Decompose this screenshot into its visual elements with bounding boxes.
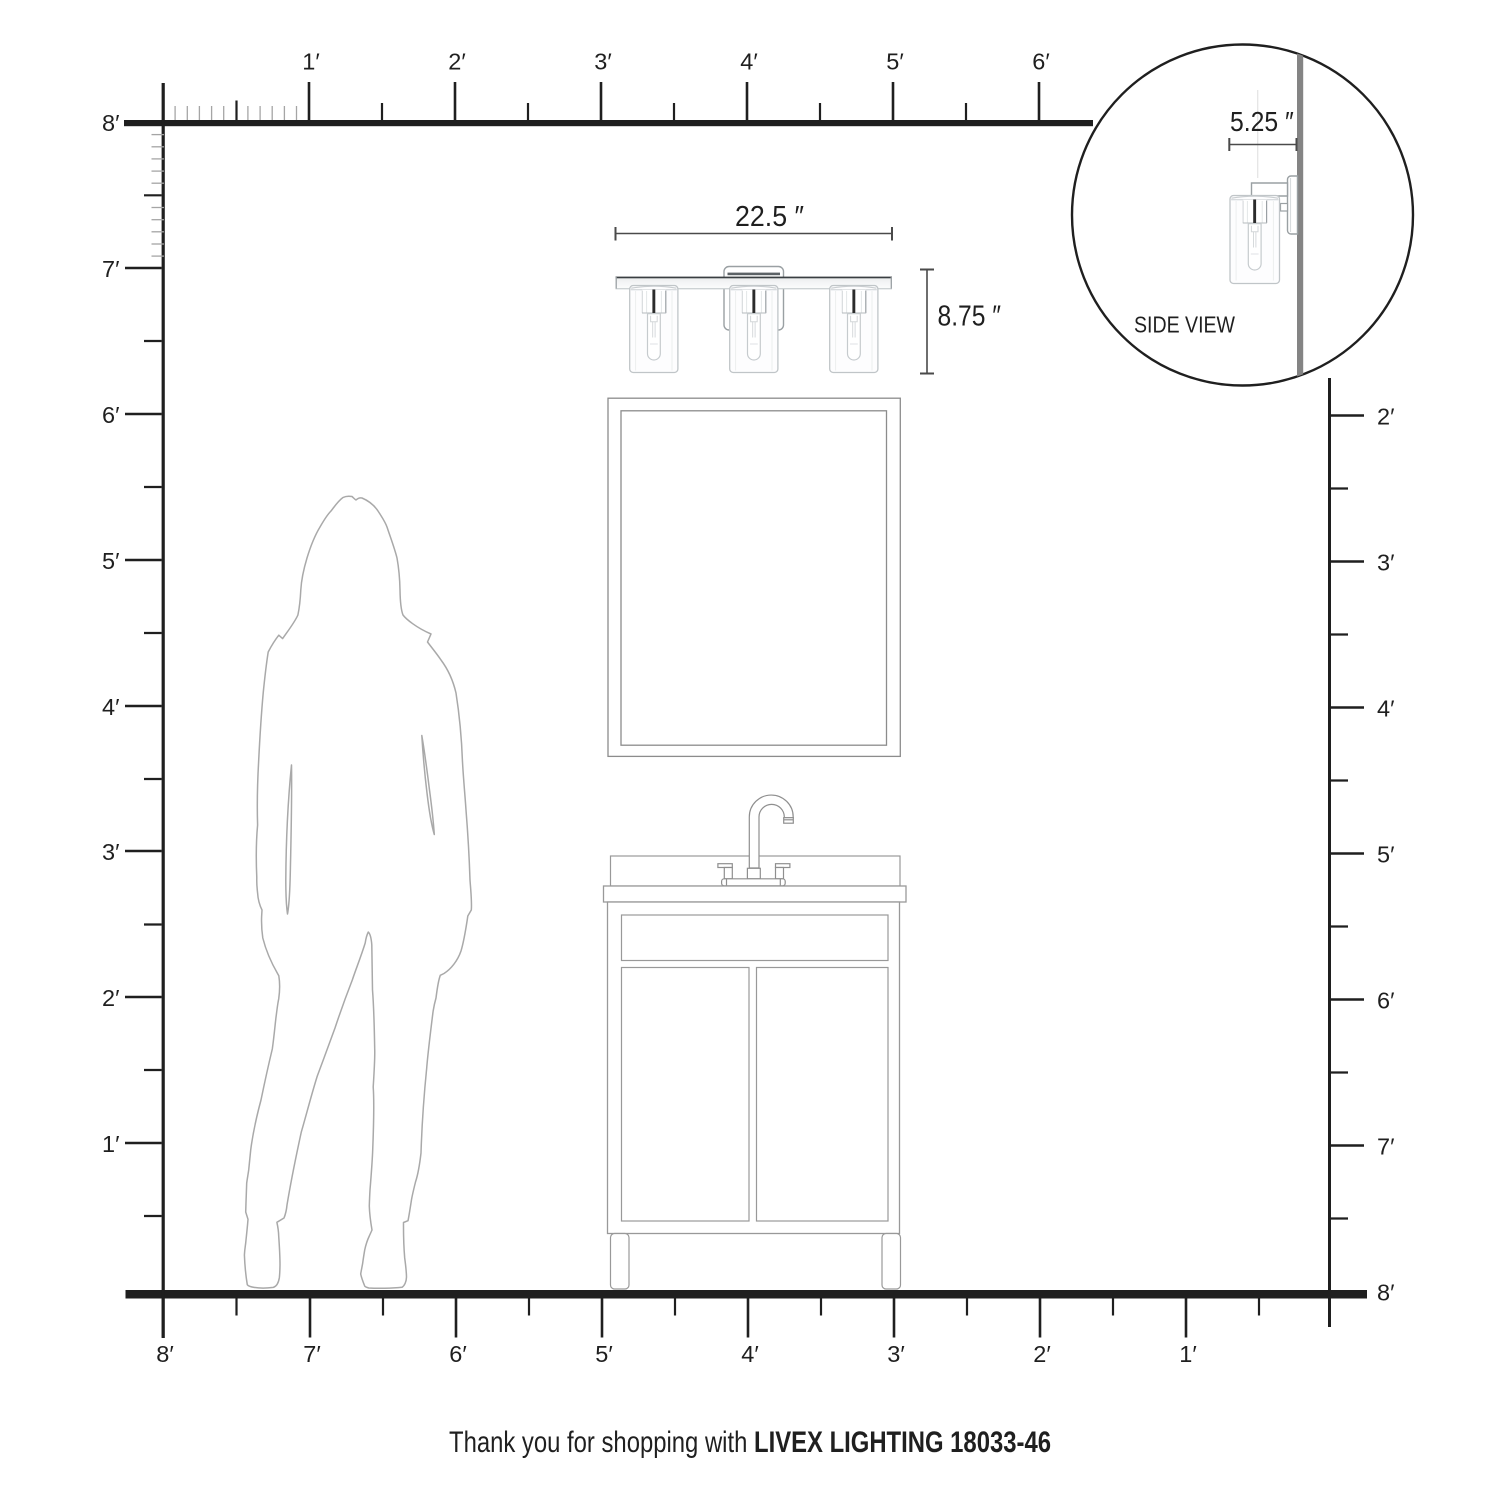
svg-text:1′: 1′ [302, 49, 319, 75]
svg-text:4′: 4′ [741, 1341, 758, 1367]
svg-text:6′: 6′ [102, 402, 119, 428]
svg-text:2′: 2′ [102, 985, 119, 1011]
svg-text:4′: 4′ [1377, 696, 1394, 722]
svg-text:1′: 1′ [102, 1131, 119, 1157]
svg-text:6′: 6′ [1032, 49, 1049, 75]
svg-text:7′: 7′ [1377, 1134, 1394, 1160]
svg-text:2′: 2′ [1377, 404, 1394, 430]
svg-text:5′: 5′ [1377, 842, 1394, 868]
svg-text:8′: 8′ [1377, 1280, 1394, 1306]
svg-text:5′: 5′ [886, 49, 903, 75]
svg-text:3′: 3′ [102, 839, 119, 865]
svg-text:22.5 ″: 22.5 ″ [735, 201, 804, 233]
svg-text:5.25 ″: 5.25 ″ [1230, 106, 1294, 137]
svg-text:2′: 2′ [448, 49, 465, 75]
svg-text:8.75 ″: 8.75 ″ [938, 301, 1002, 333]
svg-text:3′: 3′ [887, 1341, 904, 1367]
svg-text:5′: 5′ [595, 1341, 612, 1367]
svg-text:1′: 1′ [1179, 1341, 1196, 1367]
svg-text:7′: 7′ [102, 256, 119, 282]
svg-text:7′: 7′ [303, 1341, 320, 1367]
svg-text:6′: 6′ [449, 1341, 466, 1367]
svg-text:3′: 3′ [1377, 550, 1394, 576]
svg-text:3′: 3′ [594, 49, 611, 75]
svg-text:6′: 6′ [1377, 988, 1394, 1014]
svg-text:Thank you for shopping with LI: Thank you for shopping with LIVEX LIGHTI… [449, 1426, 1051, 1459]
svg-text:8′: 8′ [156, 1341, 173, 1367]
svg-text:SIDE VIEW: SIDE VIEW [1134, 312, 1236, 338]
svg-text:4′: 4′ [102, 694, 119, 720]
svg-text:8′: 8′ [102, 110, 119, 136]
svg-text:2′: 2′ [1033, 1341, 1050, 1367]
svg-text:5′: 5′ [102, 548, 119, 574]
svg-text:4′: 4′ [740, 49, 757, 75]
